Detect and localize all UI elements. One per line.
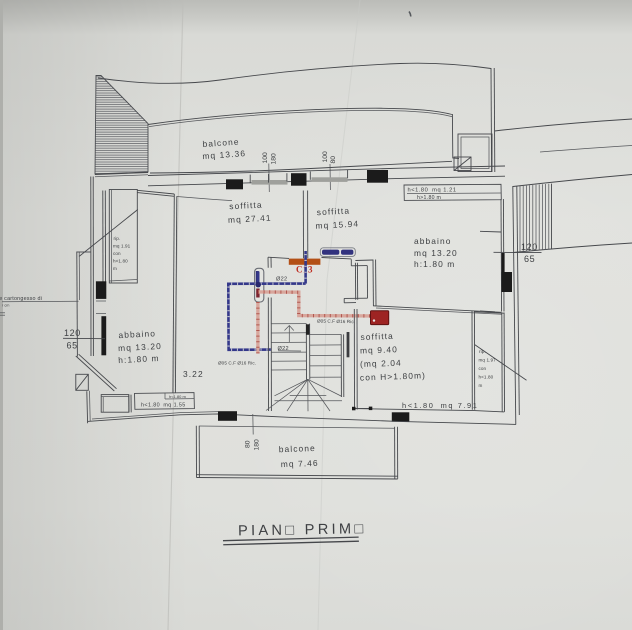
svg-text:mq 1.91: mq 1.91 [113,244,131,249]
svg-text:h<1.80 mq 1.21: h<1.80 mq 1.21 [408,188,457,194]
svg-text:mq 7.46: mq 7.46 [281,458,319,469]
svg-text:r cm: r cm [2,304,9,308]
svg-text:h<1.80: h<1.80 [479,375,494,380]
svg-text:h:1.80 m: h:1.80 m [414,259,455,269]
svg-text:Ø05 C.F Ø16 Ric.: Ø05 C.F Ø16 Ric. [317,319,355,325]
svg-text:soffitta: soffitta [229,200,263,212]
svg-text:mq 1.97: mq 1.97 [479,358,497,363]
svg-text:rip.: rip. [479,349,486,354]
svg-text:abbaino: abbaino [118,328,156,340]
svg-text:m: m [113,266,117,271]
svg-text:65: 65 [67,341,78,351]
svg-text:balcone: balcone [279,443,316,454]
svg-text:3.22: 3.22 [183,369,204,379]
svg-text:180: 180 [254,439,261,451]
svg-text:PIAN□ PRIM□: PIAN□ PRIM□ [238,521,367,539]
svg-text:h<1.80 m: h<1.80 m [169,394,186,399]
svg-text:120: 120 [521,242,538,252]
svg-text:65: 65 [524,254,535,264]
svg-text:80: 80 [330,156,337,164]
svg-text:180: 180 [271,153,278,165]
svg-text:100: 100 [262,152,269,164]
svg-text:mq 9.40: mq 9.40 [360,344,398,355]
svg-text:con: con [113,251,121,256]
svg-text:Ø05 C.F Ø16 Ric.: Ø05 C.F Ø16 Ric. [218,361,256,366]
svg-text:parete cartongesso di: parete cartongesso di [0,296,42,302]
svg-text:con: con [479,366,487,371]
svg-text:soffitta: soffitta [317,205,351,217]
svg-text:soffitta: soffitta [360,331,394,342]
svg-text:m: m [479,383,483,388]
svg-text:mq 13.20: mq 13.20 [414,248,458,258]
svg-text:100: 100 [322,151,329,163]
svg-text:rip.: rip. [114,236,121,241]
svg-text:h>1.80 m: h>1.80 m [417,195,441,201]
svg-text:80: 80 [245,440,252,448]
svg-text:h<1.80 mq 7.91: h<1.80 mq 7.91 [402,401,478,410]
svg-text:h<1.80 mq 1.55: h<1.80 mq 1.55 [141,403,186,409]
svg-text:(mq 2.04: (mq 2.04 [360,358,402,369]
svg-text:Ø22: Ø22 [276,277,287,283]
svg-text:h<1.80: h<1.80 [113,259,128,264]
svg-text:120: 120 [64,328,81,338]
svg-text:abbaino: abbaino [414,236,452,246]
